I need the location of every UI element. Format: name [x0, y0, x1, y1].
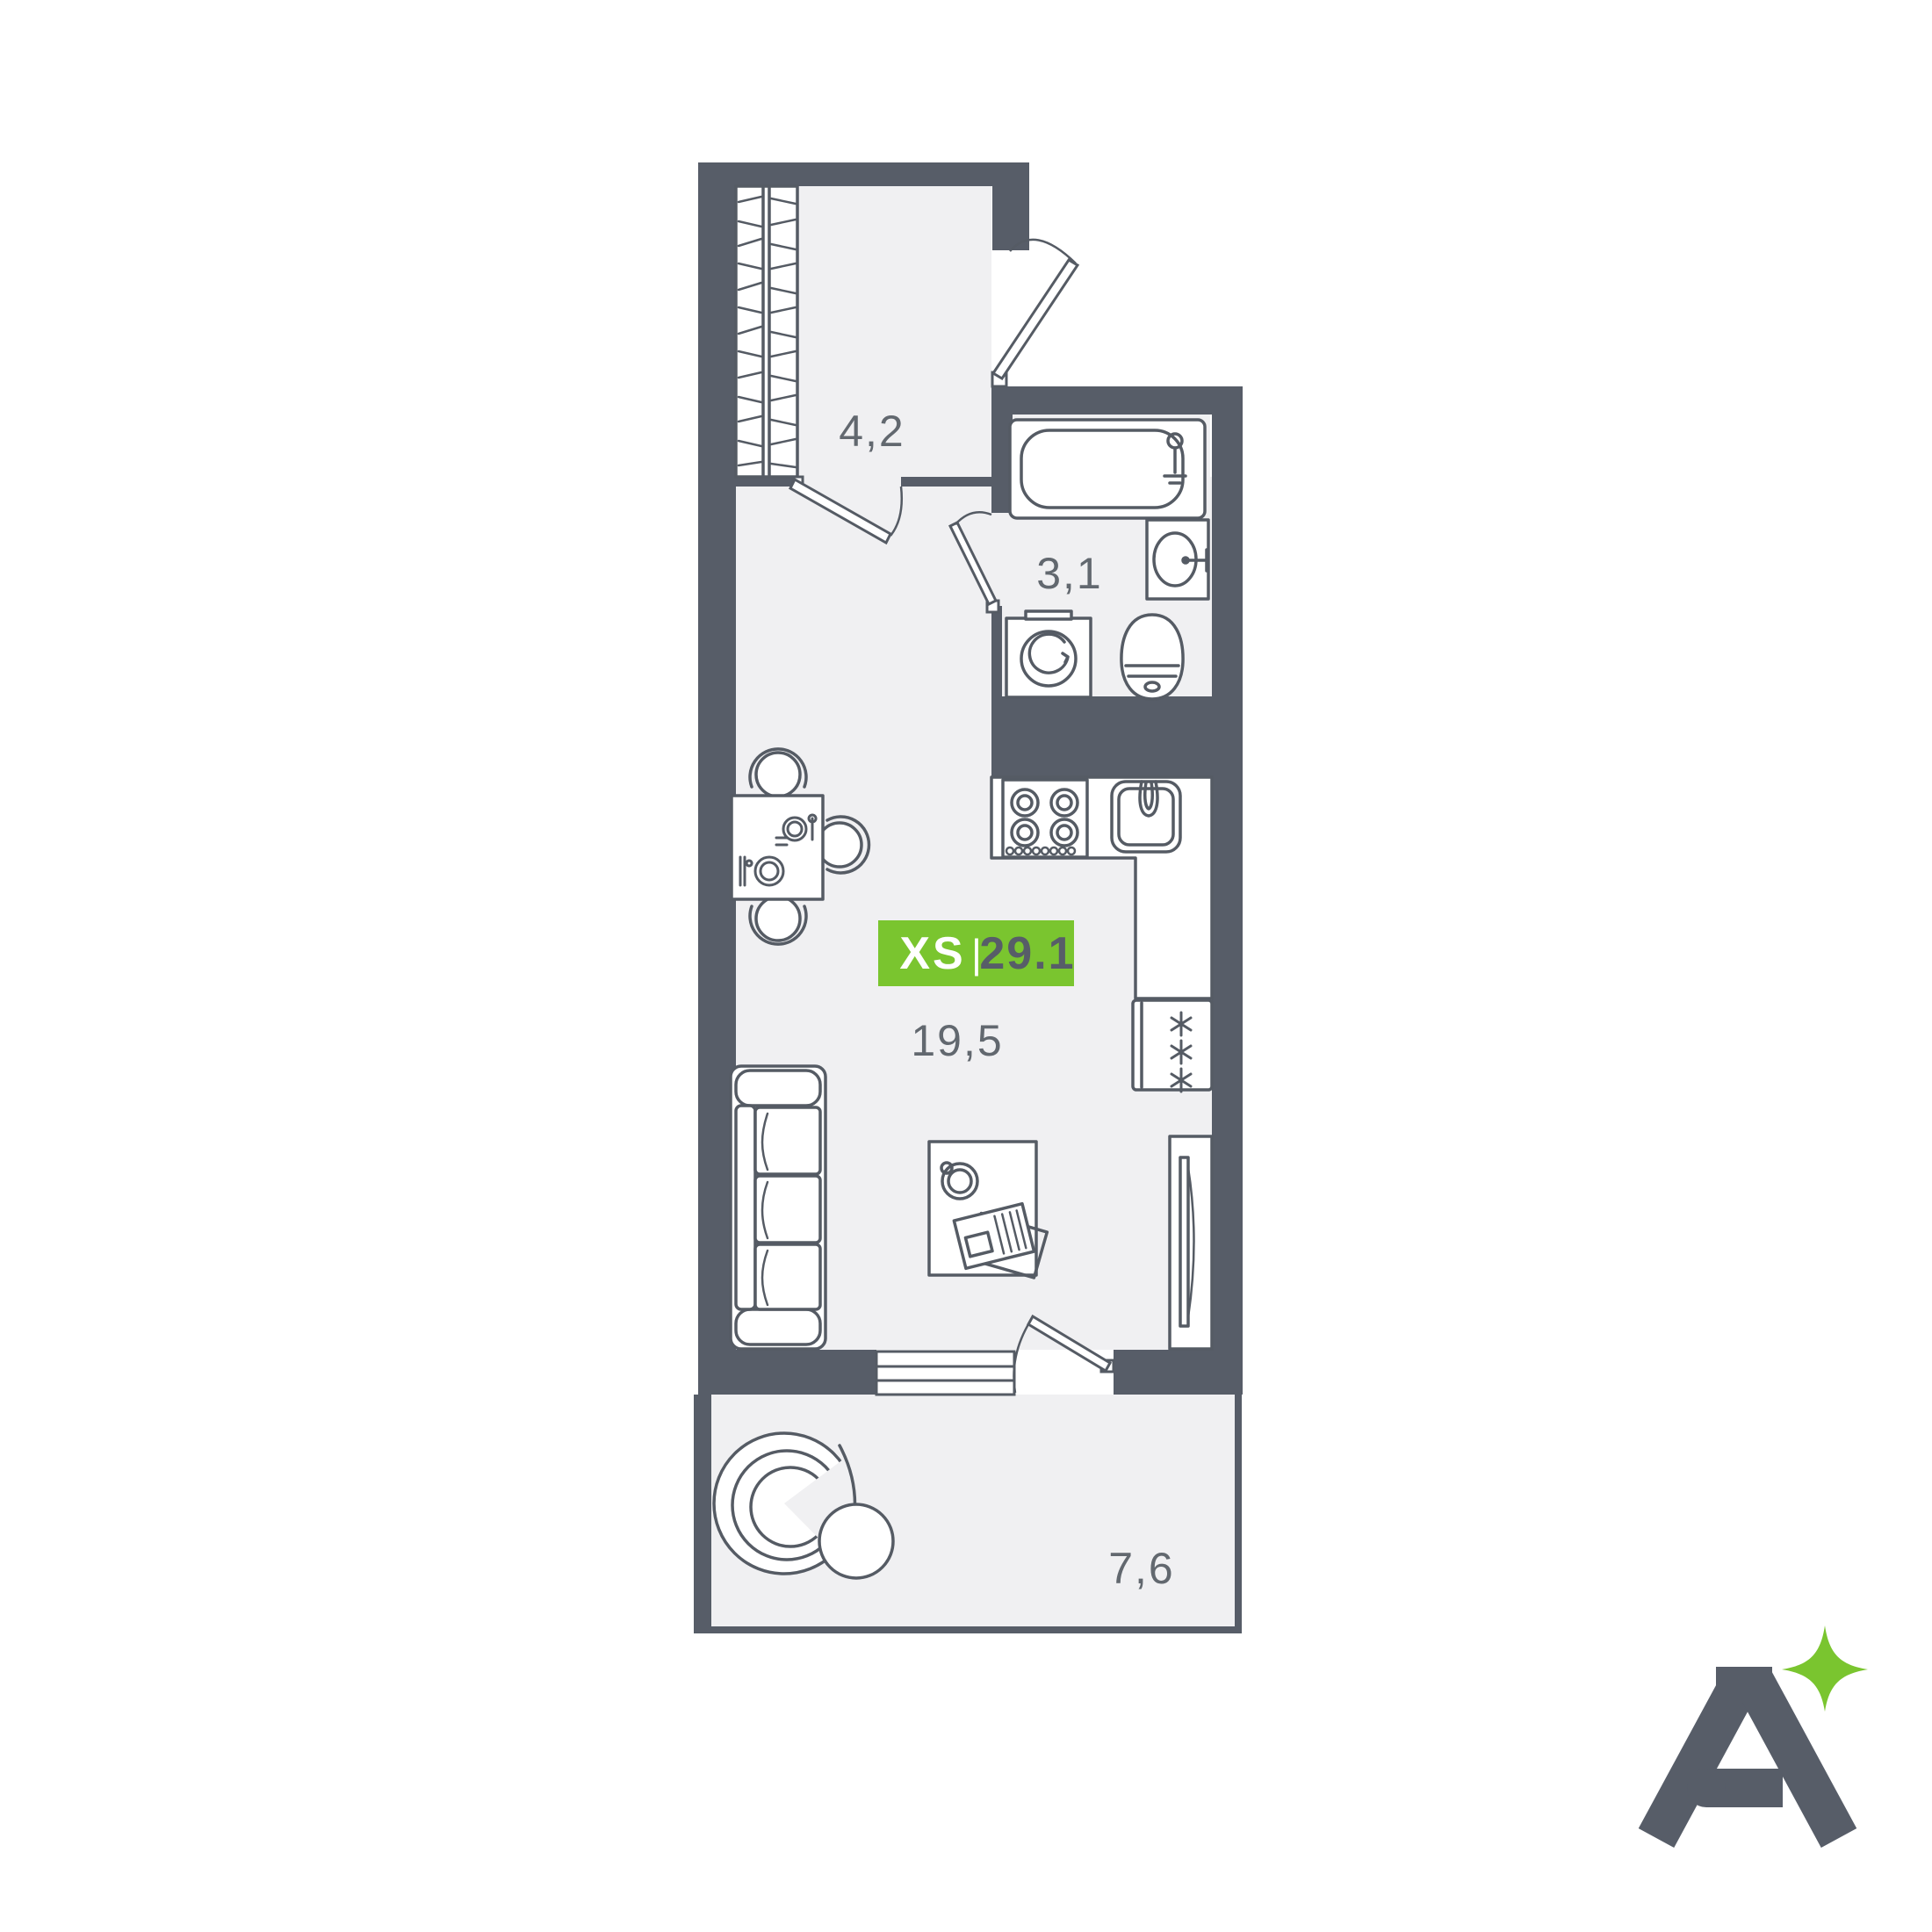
wall-bathroom-left-lower	[991, 606, 1002, 697]
wall-bottom-left	[698, 1350, 876, 1395]
bathroom-area-label: 3,1	[1036, 549, 1103, 598]
size-badge: XS | 29.1	[878, 920, 1076, 986]
washer-panel	[1026, 611, 1071, 619]
wall-balcony-left	[694, 1395, 711, 1633]
sofa-armrest-bottom	[736, 1309, 820, 1344]
wall-balcony-bottom	[694, 1626, 1242, 1633]
window-frame	[876, 1352, 1014, 1395]
pouf	[819, 1504, 893, 1578]
logo-a-apex	[1716, 1667, 1772, 1702]
balcony-window	[876, 1352, 1014, 1395]
coffee-table	[929, 1142, 1047, 1278]
bathtub	[1010, 420, 1205, 518]
floor-plan: 4,2 3,1 19,5 7,6 XS | 29.1	[0, 0, 1932, 1932]
floor-plan-page: 4,2 3,1 19,5 7,6 XS | 29.1	[0, 0, 1932, 1932]
bathroom-sink	[1147, 520, 1208, 599]
toilet-bowl	[1121, 615, 1183, 699]
washing-machine	[1006, 611, 1091, 697]
sofa-armrest-top	[736, 1071, 820, 1106]
hallway-wardrobe	[736, 186, 797, 477]
logo-a-crossbar-cap	[1687, 1769, 1726, 1807]
wall-entrance-jamb	[992, 162, 1029, 250]
wall-bottom-right	[1114, 1350, 1243, 1395]
badge-area-value: 29.1	[979, 928, 1075, 979]
wall-right	[1212, 386, 1243, 1395]
chair-bottom-seat	[756, 897, 800, 941]
sofa	[731, 1066, 825, 1349]
balcony-furniture	[714, 1433, 893, 1581]
wall-divider-right	[901, 477, 991, 487]
balcony-area-label: 7,6	[1108, 1544, 1175, 1593]
chair-top-seat	[756, 753, 800, 797]
living-area-label: 19,5	[911, 1016, 1003, 1065]
fridge	[1133, 1000, 1212, 1092]
wall-balcony-right	[1235, 1395, 1242, 1626]
hallway-area-label: 4,2	[839, 407, 905, 456]
sofa-back	[736, 1106, 755, 1309]
badge-size-label: XS	[899, 928, 965, 979]
badge-area-text: 29.1	[979, 928, 1075, 979]
wall-bathroom-top	[991, 386, 1243, 415]
tall-cabinet	[1170, 1136, 1212, 1349]
cabinet-body	[1170, 1136, 1212, 1349]
wall-top	[698, 162, 1029, 186]
wall-kitchen-block	[991, 696, 1243, 777]
toilet	[1121, 615, 1183, 699]
